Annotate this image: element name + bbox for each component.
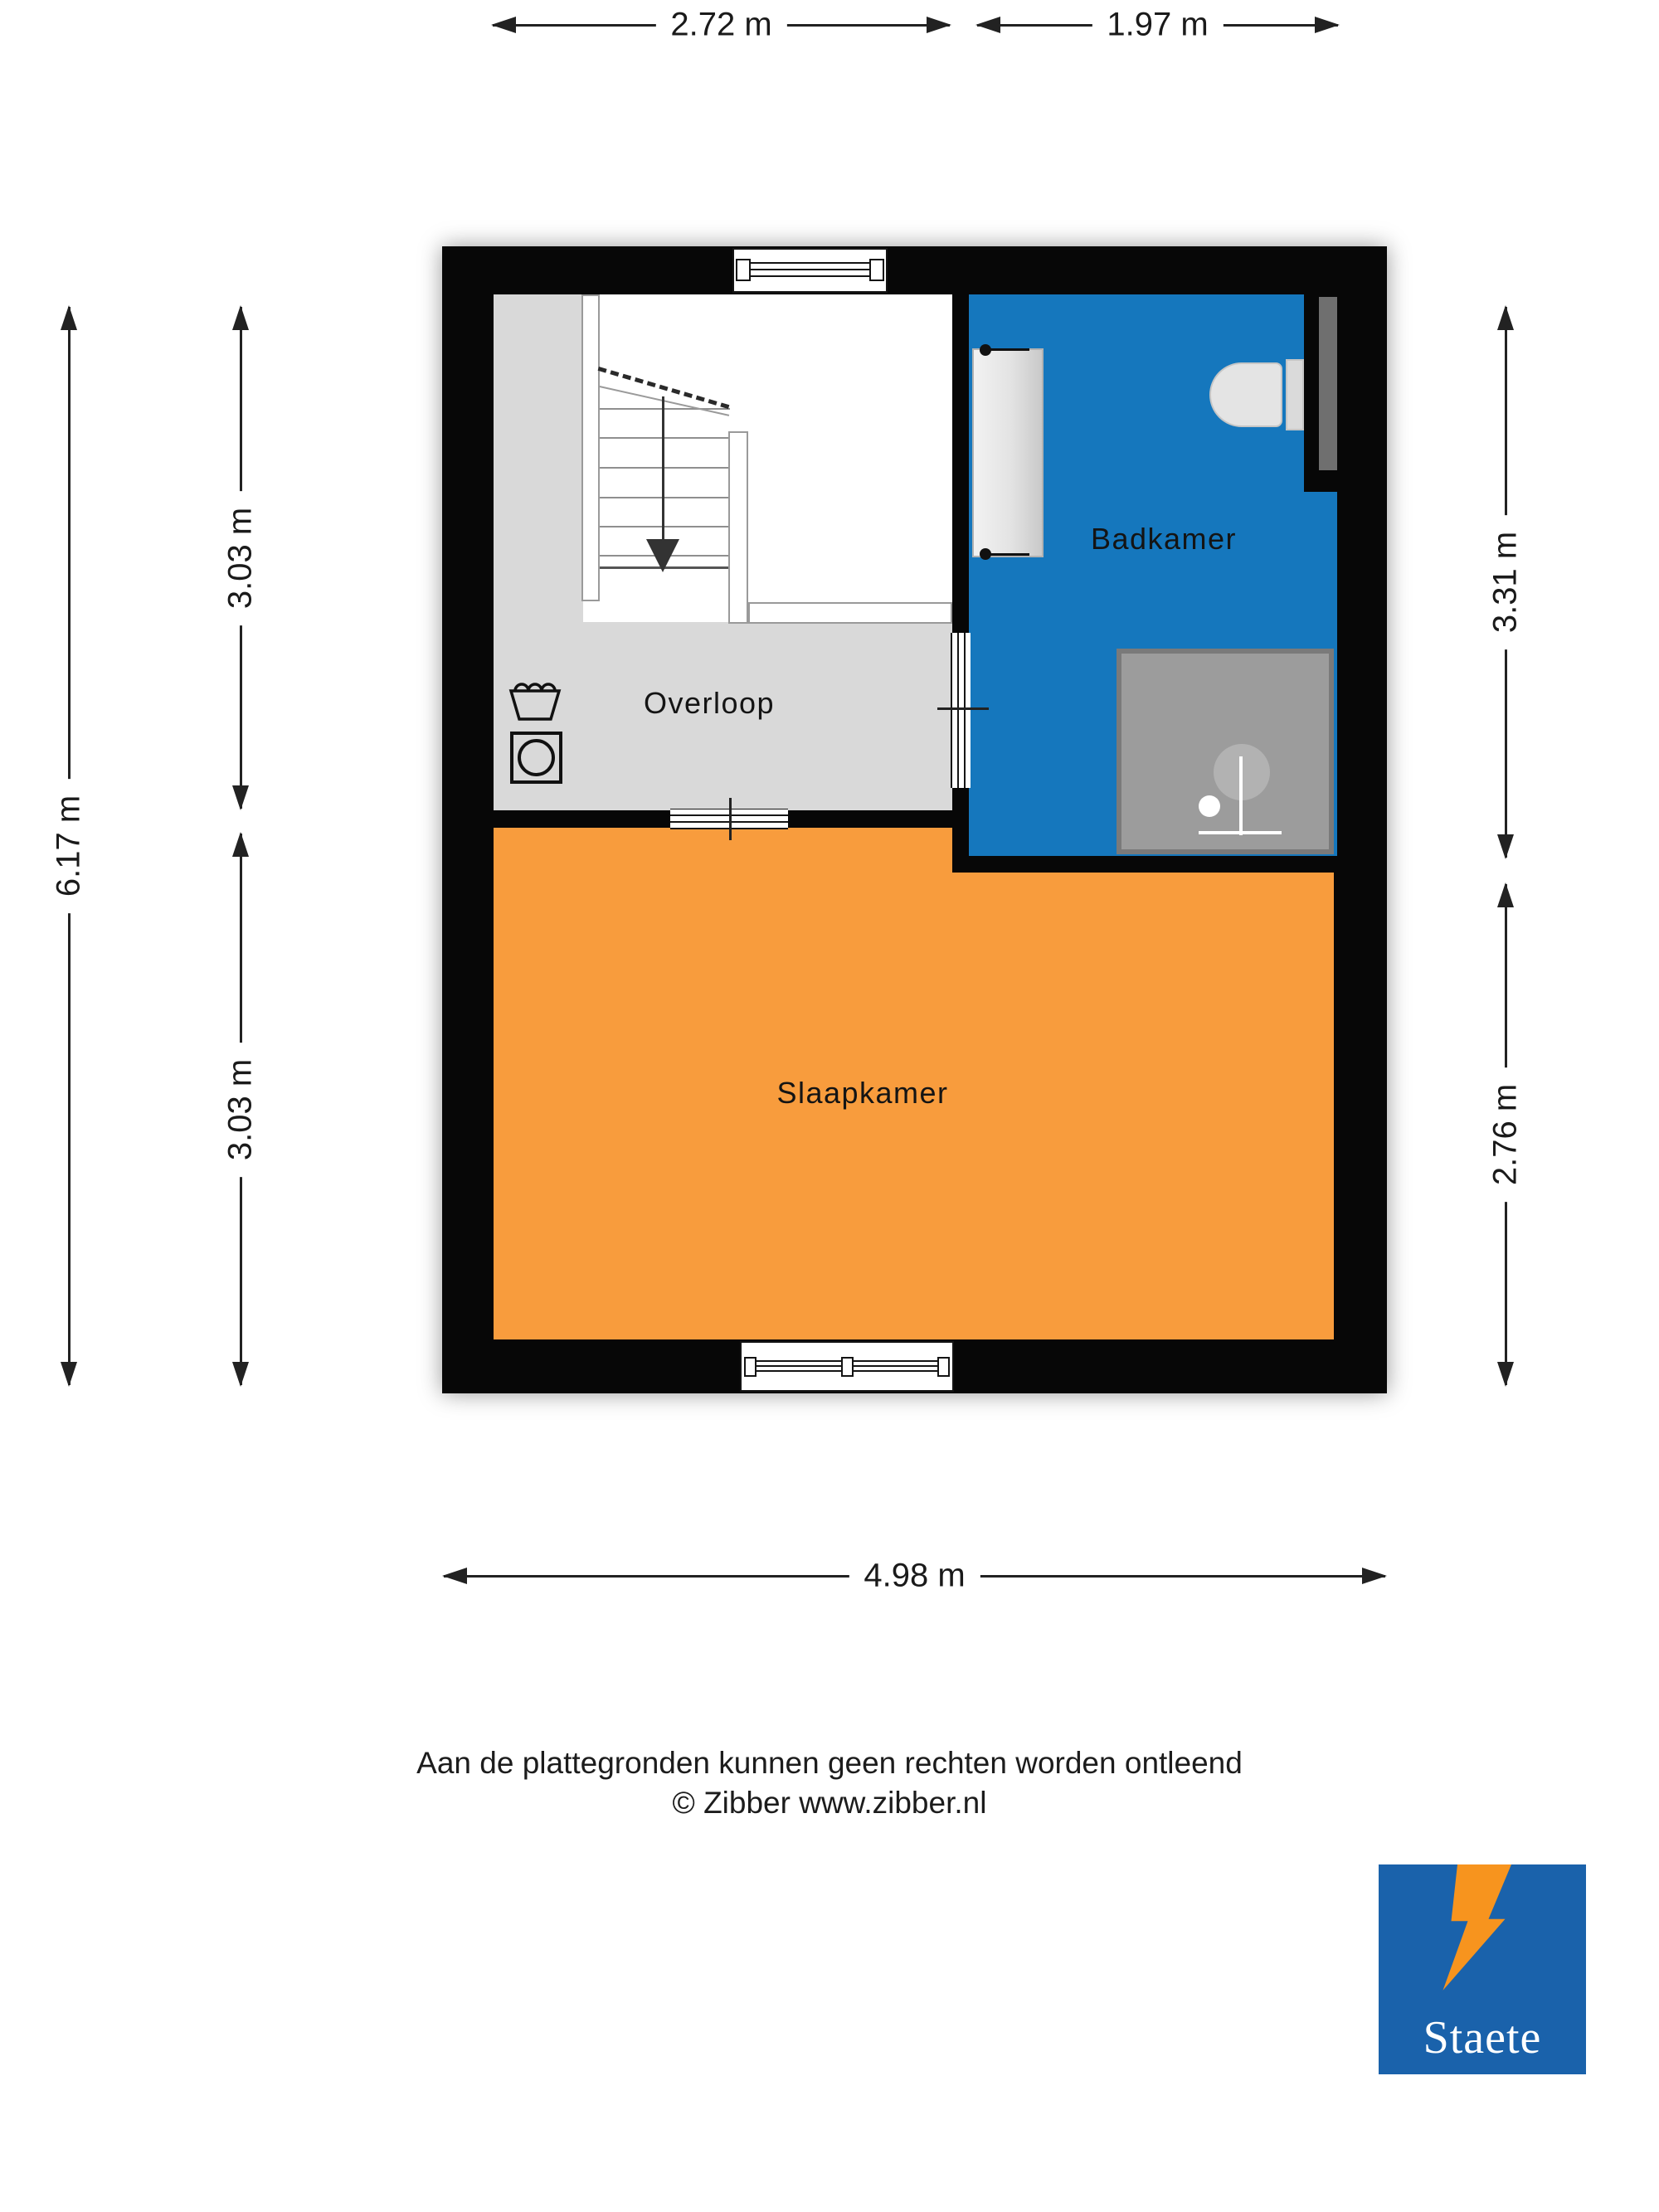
dimension-top-left: 2.72 m [491, 7, 951, 43]
arrow-left-icon [491, 17, 516, 33]
dimension-right-lower: 2.76 m [1487, 882, 1524, 1387]
room-slaapkamer-floor-right [952, 873, 1334, 1339]
floorplan-page: 2.72 m 1.97 m 6.17 m 3.03 m 3.03 m 3.31 … [0, 0, 1659, 2212]
staete-logo-text: Staete [1379, 2011, 1586, 2064]
dimension-left-lower: 3.03 m [222, 832, 259, 1387]
shower-riser [1239, 756, 1243, 835]
tap-spout [990, 348, 1029, 351]
arrow-down-icon [1497, 834, 1514, 859]
badkamer-door-tick [937, 707, 989, 710]
staete-logo: Staete [1379, 1864, 1586, 2074]
stair-direction-arrowhead-icon [646, 539, 679, 572]
dimension-label: 1.97 m [1092, 7, 1223, 44]
stair-right-stringer [728, 431, 748, 624]
dimension-left-upper: 3.03 m [222, 305, 259, 810]
shower-mixer-knob [1199, 795, 1220, 817]
stair-tread [600, 526, 730, 527]
dimension-label: 3.03 m [222, 1042, 260, 1176]
window-glazing-line [757, 1370, 841, 1372]
arrow-up-icon [1497, 882, 1514, 907]
window-glazing-line [854, 1370, 937, 1372]
window-post [744, 1357, 757, 1377]
arrow-up-icon [232, 305, 249, 330]
slaapkamer-door-tick [729, 798, 732, 840]
dimension-bottom-total: 4.98 m [442, 1558, 1387, 1594]
dimension-label: 2.72 m [655, 7, 786, 44]
arrow-up-icon [1497, 305, 1514, 330]
window-glazing-line [854, 1365, 937, 1367]
stair-tread [600, 437, 730, 439]
window-post [869, 259, 884, 281]
arrow-down-icon [1497, 1362, 1514, 1387]
stairwell-railing [748, 602, 952, 624]
arrow-down-icon [232, 785, 249, 810]
arrow-left-icon [442, 1568, 467, 1584]
arrow-up-icon [61, 305, 77, 330]
room-label-overloop: Overloop [644, 686, 775, 721]
dimension-left-total: 6.17 m [51, 305, 87, 1387]
window-bottom-icon [740, 1341, 954, 1392]
window-glazing-line [751, 262, 869, 264]
window-glazing-line [757, 1360, 841, 1362]
laundry-tub-icon [504, 674, 566, 722]
disclaimer-line-1: Aan de plattegronden kunnen geen rechten… [0, 1743, 1659, 1783]
window-post [937, 1357, 950, 1377]
dimension-top-right: 1.97 m [975, 7, 1340, 43]
dimension-label: 2.76 m [1487, 1067, 1525, 1202]
window-glazing-line [854, 1360, 937, 1362]
arrow-down-icon [232, 1362, 249, 1387]
window-top-icon [732, 248, 888, 293]
toilet-tank-icon [1286, 359, 1304, 430]
dimension-label: 3.31 m [1487, 515, 1525, 649]
dimension-right-upper: 3.31 m [1487, 305, 1524, 859]
toilet-bowl-icon [1209, 362, 1282, 427]
stair-tread [600, 408, 730, 410]
washbasin-icon [972, 348, 1044, 557]
duct-niche [1319, 297, 1337, 470]
disclaimer: Aan de plattegronden kunnen geen rechten… [0, 1743, 1659, 1823]
window-glazing-line [751, 275, 869, 277]
window-glazing-line [757, 1365, 841, 1367]
stairwell-void [583, 294, 952, 622]
room-label-badkamer: Badkamer [1091, 522, 1237, 557]
dimension-label: 3.03 m [222, 490, 260, 625]
arrow-right-icon [1362, 1568, 1387, 1584]
arrow-down-icon [61, 1362, 77, 1387]
window-glazing-line [751, 269, 869, 270]
arrow-left-icon [975, 17, 1000, 33]
window-post [736, 259, 751, 281]
disclaimer-line-2: © Zibber www.zibber.nl [0, 1783, 1659, 1823]
window-post [841, 1357, 854, 1377]
room-label-slaapkamer: Slaapkamer [776, 1076, 948, 1111]
dimension-label: 4.98 m [849, 1558, 980, 1595]
floor-plan-building: Overloop Badkamer Slaapkamer [442, 246, 1387, 1393]
stair-left-stringer [581, 294, 600, 601]
stair-tread [600, 497, 730, 498]
stair-tread [600, 467, 730, 469]
arrow-right-icon [1315, 17, 1340, 33]
washing-machine-drum [518, 739, 555, 776]
tap-spout [990, 553, 1029, 556]
badkamer-door-icon [951, 633, 971, 788]
arrow-right-icon [927, 17, 951, 33]
shower-bar [1199, 831, 1282, 834]
stair-direction-arrow-icon [662, 396, 664, 541]
arrow-up-icon [232, 832, 249, 857]
dimension-label: 6.17 m [51, 779, 88, 913]
